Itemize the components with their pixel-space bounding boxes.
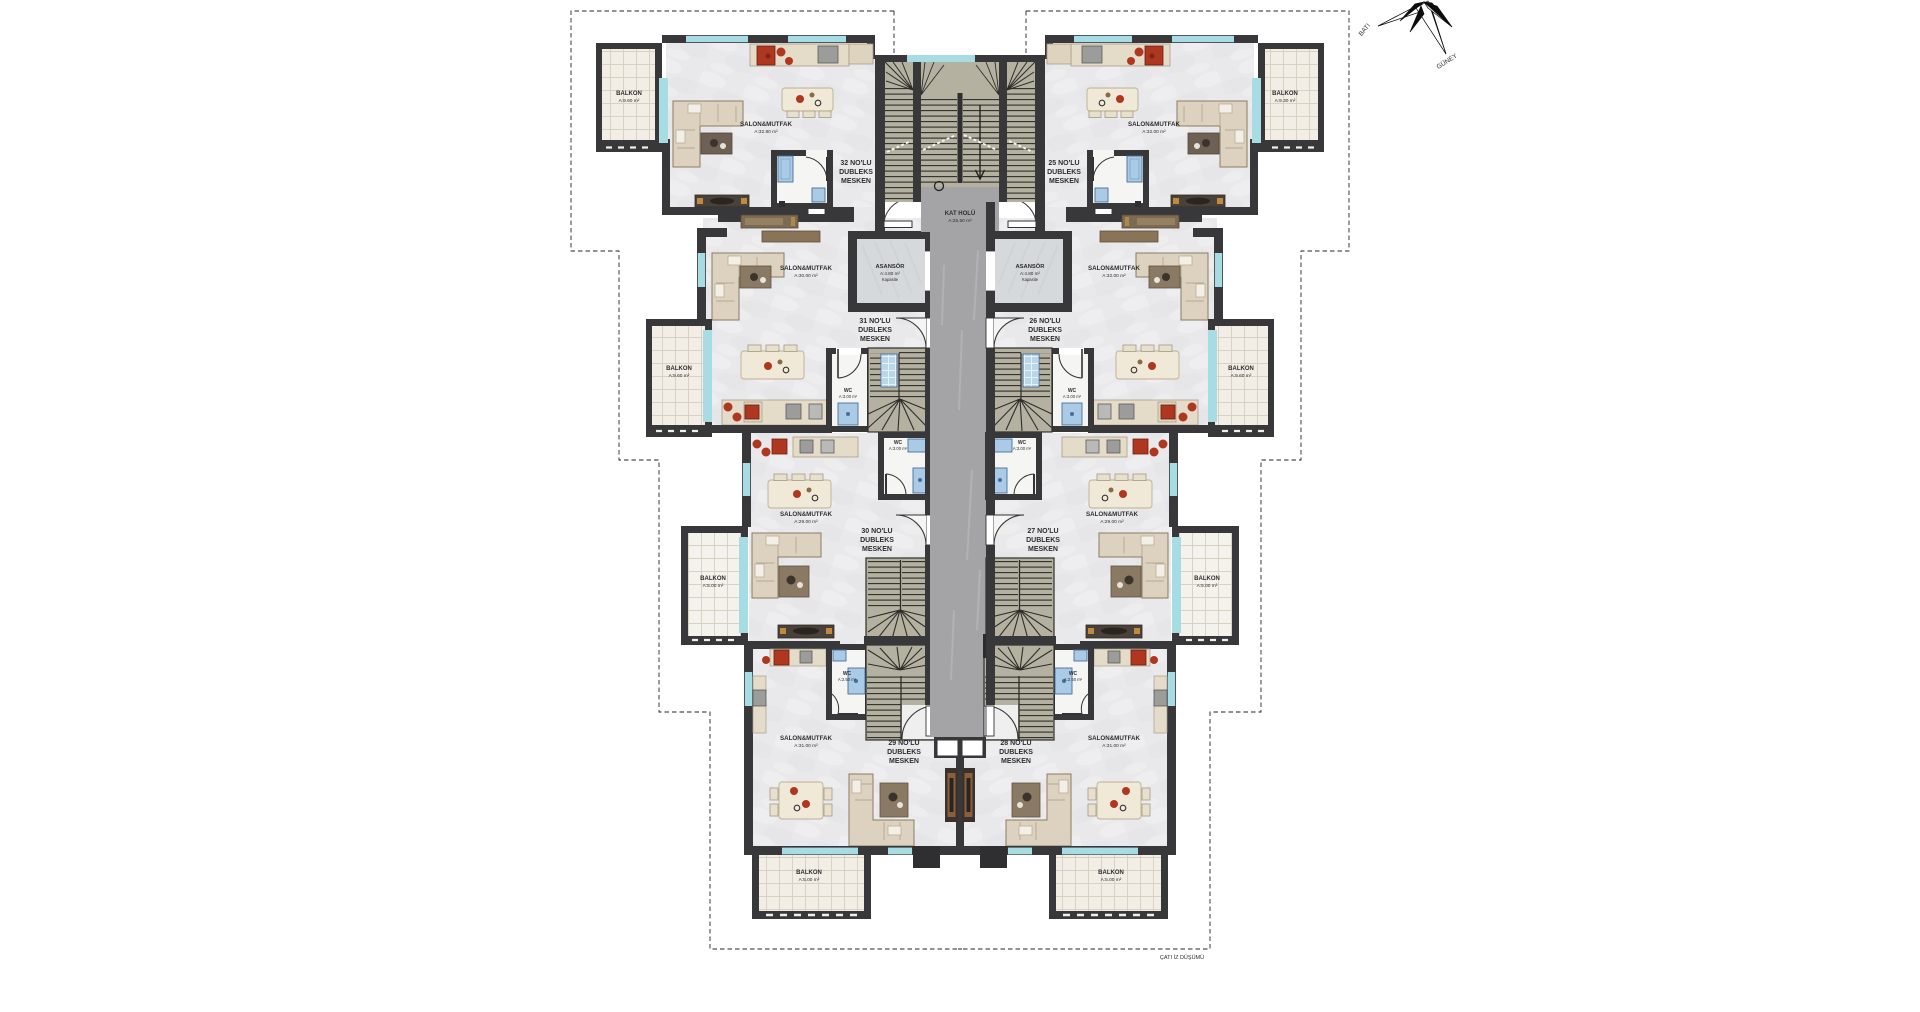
svg-text:A:4.80 m²: A:4.80 m² <box>1020 271 1040 276</box>
svg-text:MESKEN: MESKEN <box>862 546 892 553</box>
svg-text:A:29.00 m²: A:29.00 m² <box>1100 519 1124 525</box>
svg-text:30 NO'LU: 30 NO'LU <box>861 528 892 535</box>
svg-text:SALON&MUTFAK: SALON&MUTFAK <box>1086 511 1138 518</box>
svg-text:BALKON: BALKON <box>1228 366 1254 372</box>
svg-text:MESKEN: MESKEN <box>889 758 919 765</box>
svg-text:MESKEN: MESKEN <box>860 336 890 343</box>
svg-text:A:32.80 m²: A:32.80 m² <box>754 129 778 135</box>
svg-text:A:29.00 m²: A:29.00 m² <box>794 519 818 525</box>
svg-text:A:25.50 m²: A:25.50 m² <box>948 218 972 224</box>
svg-text:DUBLEKS: DUBLEKS <box>1047 169 1081 176</box>
svg-text:A:3.00 m²: A:3.00 m² <box>1013 446 1032 451</box>
svg-text:A:2.50 m²: A:2.50 m² <box>838 677 857 682</box>
svg-text:BALKON: BALKON <box>700 576 726 582</box>
svg-text:A:2.50 m²: A:2.50 m² <box>1064 677 1083 682</box>
svg-text:Kapasite: Kapasite <box>882 277 899 282</box>
svg-text:A:9.60 m²: A:9.60 m² <box>619 98 640 104</box>
svg-text:DUBLEKS: DUBLEKS <box>1028 327 1062 334</box>
svg-text:DUBLEKS: DUBLEKS <box>839 169 873 176</box>
svg-text:A:3.00 m²: A:3.00 m² <box>839 394 858 399</box>
svg-text:MESKEN: MESKEN <box>1049 178 1079 185</box>
svg-text:A:9.30 m²: A:9.30 m² <box>1275 98 1296 104</box>
svg-text:SALON&MUTFAK: SALON&MUTFAK <box>780 265 832 272</box>
svg-text:SALON&MUTFAK: SALON&MUTFAK <box>780 735 832 742</box>
svg-text:MESKEN: MESKEN <box>1028 546 1058 553</box>
svg-text:MESKEN: MESKEN <box>841 178 871 185</box>
svg-text:BALKON: BALKON <box>616 91 642 97</box>
svg-text:BALKON: BALKON <box>1272 91 1298 97</box>
svg-text:ÇATI İZ DÜŞÜMÜ: ÇATI İZ DÜŞÜMÜ <box>1160 954 1204 961</box>
svg-text:DUBLEKS: DUBLEKS <box>858 327 892 334</box>
svg-text:31 NO'LU: 31 NO'LU <box>859 318 890 325</box>
svg-text:A:31.00 m²: A:31.00 m² <box>794 743 818 749</box>
svg-text:SALON&MUTFAK: SALON&MUTFAK <box>1128 121 1180 128</box>
svg-text:25 NO'LU: 25 NO'LU <box>1048 160 1079 167</box>
svg-text:DUBLEKS: DUBLEKS <box>1026 537 1060 544</box>
svg-text:A:32.00 m²: A:32.00 m² <box>1142 129 1166 135</box>
svg-text:ASANSÖR: ASANSÖR <box>1016 263 1046 270</box>
svg-text:MESKEN: MESKEN <box>1030 336 1060 343</box>
svg-text:A:5.00 m²: A:5.00 m² <box>1101 877 1122 883</box>
svg-text:SALON&MUTFAK: SALON&MUTFAK <box>1088 265 1140 272</box>
svg-text:BALKON: BALKON <box>666 366 692 372</box>
svg-text:A:31.00 m²: A:31.00 m² <box>1102 743 1126 749</box>
svg-text:32 NO'LU: 32 NO'LU <box>840 160 871 167</box>
svg-text:27 NO'LU: 27 NO'LU <box>1027 528 1058 535</box>
svg-text:SALON&MUTFAK: SALON&MUTFAK <box>1088 735 1140 742</box>
svg-text:SALON&MUTFAK: SALON&MUTFAK <box>740 121 792 128</box>
svg-text:A:32.00 m²: A:32.00 m² <box>1102 273 1126 279</box>
svg-text:29 NO'LU: 29 NO'LU <box>888 740 919 747</box>
svg-text:A:4.80 m²: A:4.80 m² <box>880 271 900 276</box>
svg-text:26 NO'LU: 26 NO'LU <box>1029 318 1060 325</box>
svg-text:A:9.60 m²: A:9.60 m² <box>669 373 690 379</box>
svg-text:DUBLEKS: DUBLEKS <box>860 537 894 544</box>
svg-text:DUBLEKS: DUBLEKS <box>887 749 921 756</box>
svg-text:A:5.00 m²: A:5.00 m² <box>799 877 820 883</box>
svg-text:ASANSÖR: ASANSÖR <box>876 263 906 270</box>
svg-text:A:30.00 m²: A:30.00 m² <box>794 273 818 279</box>
svg-text:DUBLEKS: DUBLEKS <box>999 749 1033 756</box>
svg-text:28 NO'LU: 28 NO'LU <box>1000 740 1031 747</box>
svg-text:A:3.00 m²: A:3.00 m² <box>889 446 908 451</box>
svg-text:BALKON: BALKON <box>1098 870 1124 876</box>
svg-text:KAT HOLÜ: KAT HOLÜ <box>945 210 976 217</box>
svg-text:BALKON: BALKON <box>1194 576 1220 582</box>
svg-text:MESKEN: MESKEN <box>1001 758 1031 765</box>
svg-text:A:3.00 m²: A:3.00 m² <box>1063 394 1082 399</box>
svg-text:BALKON: BALKON <box>796 870 822 876</box>
svg-text:SALON&MUTFAK: SALON&MUTFAK <box>780 511 832 518</box>
svg-text:A:5.00 m²: A:5.00 m² <box>1197 583 1218 589</box>
svg-text:A:5.00 m²: A:5.00 m² <box>703 583 724 589</box>
svg-text:Kapasite: Kapasite <box>1022 277 1039 282</box>
svg-text:A:9.60 m²: A:9.60 m² <box>1231 373 1252 379</box>
